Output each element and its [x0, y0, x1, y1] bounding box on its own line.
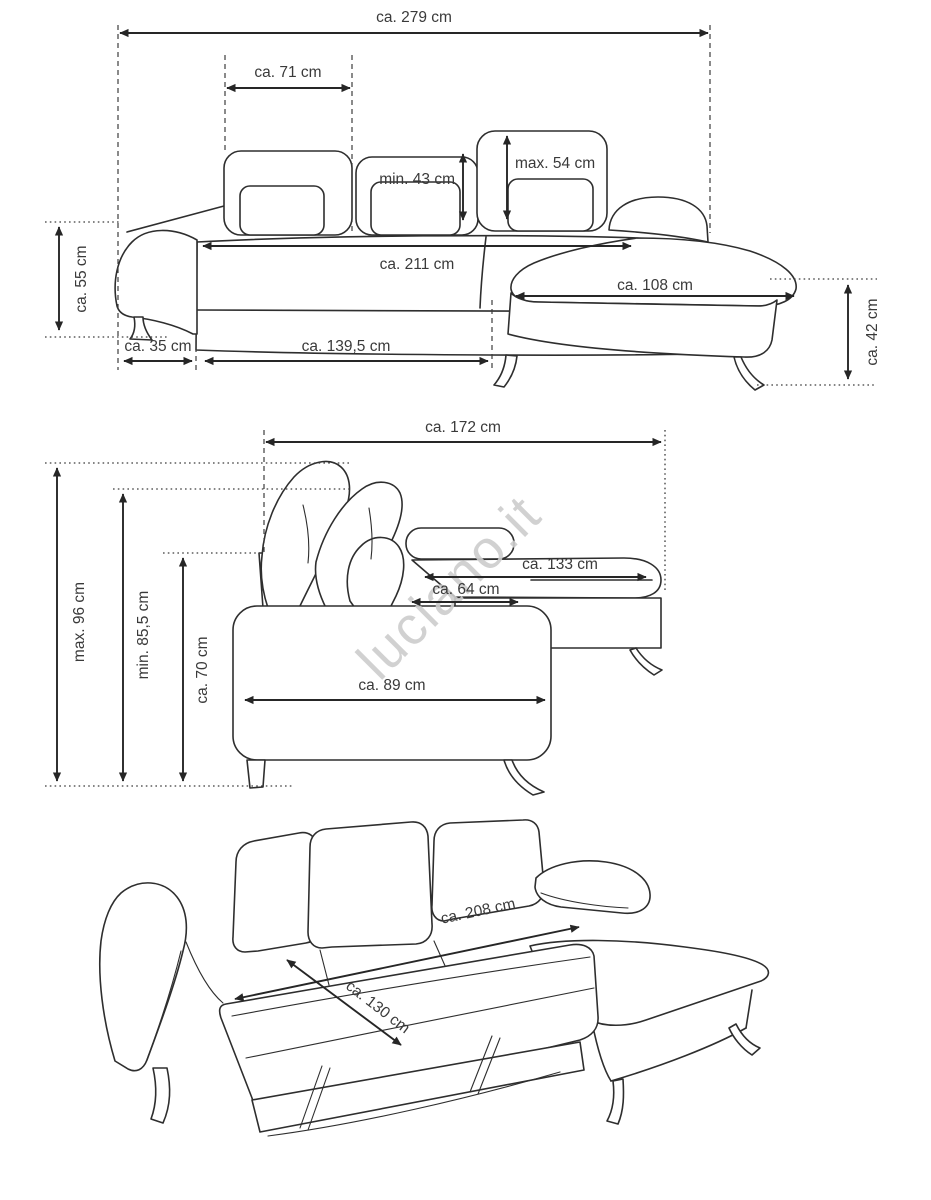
pillow-right	[508, 179, 593, 231]
dim-label-total-depth: ca. 172 cm	[425, 419, 501, 436]
sofa-dimension-diagram: ca. 279 cm ca. 71 cm min. 43 cm max. 54 …	[0, 0, 931, 1200]
dim-label-chaise-length: ca. 108 cm	[617, 277, 693, 294]
dim-label-seat-depth: ca. 64 cm	[432, 581, 499, 598]
front-left-armrest	[115, 230, 197, 334]
dim-label-body-depth: ca. 89 cm	[358, 677, 425, 694]
sofa-back-edge	[127, 206, 224, 232]
dim-label-seat-height: ca. 55 cm	[73, 245, 90, 312]
dim-label-front-width: ca. 139,5 cm	[302, 338, 391, 355]
pillow-left	[240, 186, 324, 235]
seat-leg	[494, 355, 517, 387]
dim-label-chaise-depth: ca. 133 cm	[522, 556, 598, 573]
dim-label-chaise-height: ca. 42 cm	[864, 298, 881, 365]
dim-label-height-max: max. 96 cm	[71, 582, 88, 662]
chaise-front-face	[611, 1028, 746, 1081]
chaise-leg	[734, 357, 764, 390]
front-view: ca. 279 cm ca. 71 cm min. 43 cm max. 54 …	[45, 9, 881, 390]
side-front-leg	[247, 760, 265, 788]
dim-label-height-min: min. 85,5 cm	[135, 591, 152, 680]
diagram-canvas: ca. 279 cm ca. 71 cm min. 43 cm max. 54 …	[0, 0, 931, 1200]
chaise-front-face	[746, 990, 752, 1028]
bed-left-armrest-leg	[151, 1068, 170, 1123]
dim-label-backrest-min: min. 43 cm	[379, 171, 455, 188]
bed-view: ca. 208 cm ca. 130 cm	[100, 820, 769, 1136]
dim-label-total-width: ca. 279 cm	[376, 9, 452, 26]
bed-chaise-leg	[607, 1079, 623, 1124]
pillow-middle	[371, 182, 460, 235]
dim-label-seat-width: ca. 211 cm	[380, 256, 455, 273]
bed-right-armrest	[535, 861, 650, 913]
dim-label-backrest-height: ca. 70 cm	[194, 636, 211, 703]
bed-left-armrest	[100, 883, 187, 1071]
seat-deck-edge	[186, 942, 223, 1003]
bed-backrest-middle	[308, 822, 432, 948]
dim-label-headrest-width: ca. 71 cm	[254, 64, 321, 81]
side-rear-leg	[504, 760, 544, 795]
dim-label-armrest-width: ca. 35 cm	[124, 338, 191, 355]
side-chaise-leg	[630, 648, 662, 675]
chaise-armrest	[609, 197, 708, 242]
dim-label-backrest-max: max. 54 cm	[515, 155, 595, 172]
